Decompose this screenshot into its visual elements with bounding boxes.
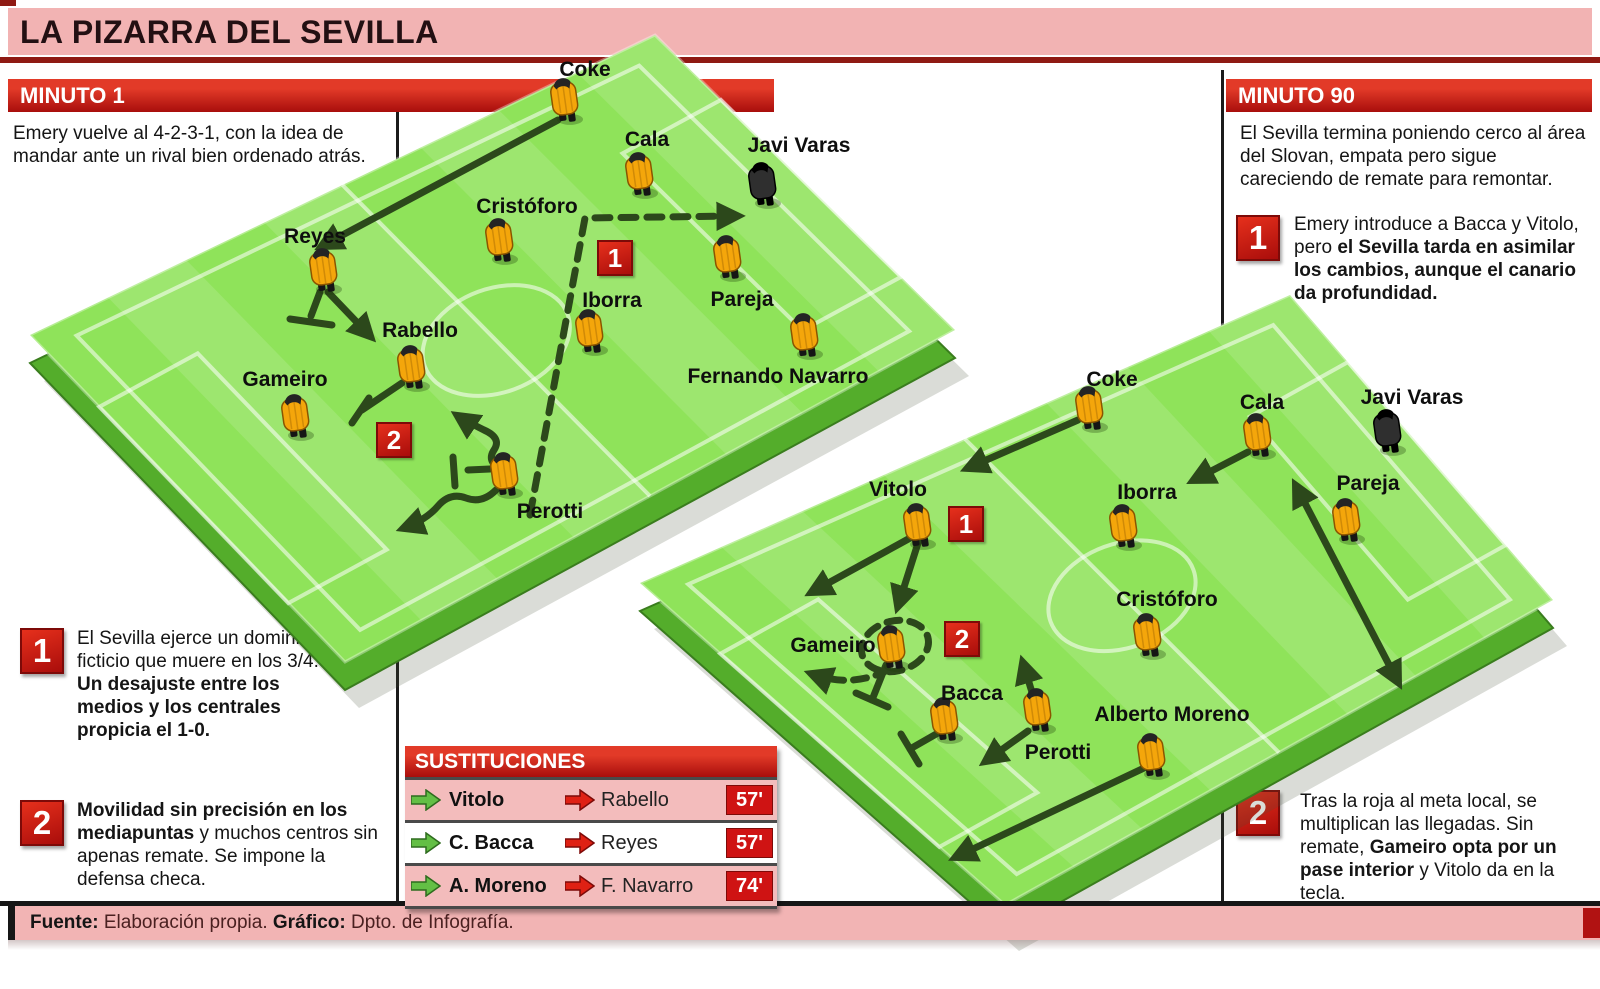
footer-source-text: Elaboración propia. — [99, 912, 273, 933]
pitch-badge-2: 2 — [376, 422, 412, 458]
sub-minute-badge: 57' — [726, 785, 773, 815]
player-token-fernando-navarro — [784, 309, 826, 361]
sub-player-in: C. Bacca — [449, 832, 565, 855]
player-token-cala — [1237, 409, 1279, 461]
player-token-perotti — [484, 448, 526, 500]
sub-in-arrow-icon — [411, 875, 441, 897]
player-token-coke — [544, 74, 586, 126]
substitution-row: C. Bacca Reyes 57' — [405, 820, 777, 863]
pitch-badge-2: 2 — [944, 621, 980, 657]
substitutions-header: SUSTITUCIONES — [405, 746, 777, 777]
player-token-pareja — [1326, 494, 1368, 546]
player-label: Cala — [625, 128, 669, 152]
footer-end-mark — [1583, 908, 1600, 938]
player-token-iborra — [569, 305, 611, 357]
sub-out-arrow-icon — [565, 875, 595, 897]
player-label: Gameiro — [790, 634, 875, 658]
sub-minute-badge: 74' — [726, 871, 773, 901]
player-label: Fernando Navarro — [688, 365, 869, 389]
sub-in-arrow-icon — [411, 789, 441, 811]
footer-left-edge — [8, 906, 15, 940]
player-token-iborra — [1103, 500, 1145, 552]
player-token-vitolo — [897, 499, 939, 551]
player-label: Gameiro — [242, 368, 327, 392]
sub-player-in: A. Moreno — [449, 875, 565, 898]
player-label: Iborra — [1117, 481, 1177, 505]
player-token-reyes — [303, 244, 345, 296]
infographic-canvas: LA PIZARRA DEL SEVILLA MINUTO 1 MINUTO 9… — [0, 0, 1600, 989]
sub-minute-badge: 57' — [726, 828, 773, 858]
player-token-cristoforo — [1127, 609, 1169, 661]
player-label: Rabello — [382, 319, 458, 343]
player-token-alberto-moreno — [1131, 729, 1173, 781]
sub-out-arrow-icon — [565, 832, 595, 854]
player-label: Perotti — [1025, 741, 1092, 765]
footer-credit-label: Gráfico: — [273, 912, 346, 933]
player-label: Cristóforo — [476, 195, 578, 219]
substitution-row: A. Moreno F. Navarro 74' — [405, 863, 777, 906]
goalkeeper-token-javi-varas — [1367, 405, 1409, 457]
hold-bar-perotti — [453, 457, 455, 486]
player-label: Javi Varas — [748, 134, 851, 158]
sub-out-arrow-icon — [565, 789, 595, 811]
player-token-gameiro — [871, 621, 913, 673]
sub-player-out: Rabello — [601, 789, 709, 812]
player-label: Reyes — [284, 225, 346, 249]
player-label: Pareja — [710, 288, 773, 312]
player-token-gameiro — [275, 390, 317, 442]
player-label: Coke — [559, 58, 610, 82]
sub-player-in: Vitolo — [449, 789, 565, 812]
player-token-rabello — [391, 341, 433, 393]
player-label: Coke — [1086, 368, 1137, 392]
footer-bar: Fuente: Elaboración propia. Gráfico: Dpt… — [8, 906, 1600, 940]
player-label: Iborra — [582, 289, 642, 313]
substitution-row: Vitolo Rabello 57' — [405, 777, 777, 820]
footer-shadow — [8, 940, 1600, 950]
goalkeeper-token-javi-varas — [742, 158, 784, 210]
player-token-perotti — [1017, 684, 1059, 736]
sub-player-out: F. Navarro — [601, 875, 709, 898]
pitch-badge-1: 1 — [597, 240, 633, 276]
player-label: Perotti — [517, 500, 584, 524]
footer-credit-text: Dpto. de Infografía. — [346, 912, 514, 933]
player-token-pareja — [707, 231, 749, 283]
player-label: Cala — [1240, 391, 1284, 415]
player-label: Bacca — [941, 682, 1003, 706]
sub-in-arrow-icon — [411, 832, 441, 854]
pitch-badge-1: 1 — [948, 506, 984, 542]
footer-source-label: Fuente: — [30, 912, 99, 933]
player-label: Pareja — [1336, 472, 1399, 496]
player-label: Vitolo — [869, 478, 927, 502]
sub-player-out: Reyes — [601, 832, 709, 855]
footer-credits: Fuente: Elaboración propia. Gráfico: Dpt… — [30, 906, 514, 940]
player-label: Alberto Moreno — [1094, 703, 1249, 727]
player-label: Javi Varas — [1361, 386, 1464, 410]
player-token-cala — [619, 148, 661, 200]
substitutions-table: SUSTITUCIONES Vitolo Rabello 57' C. Bacc… — [405, 746, 777, 909]
player-token-cristoforo — [479, 214, 521, 266]
player-label: Cristóforo — [1116, 588, 1218, 612]
